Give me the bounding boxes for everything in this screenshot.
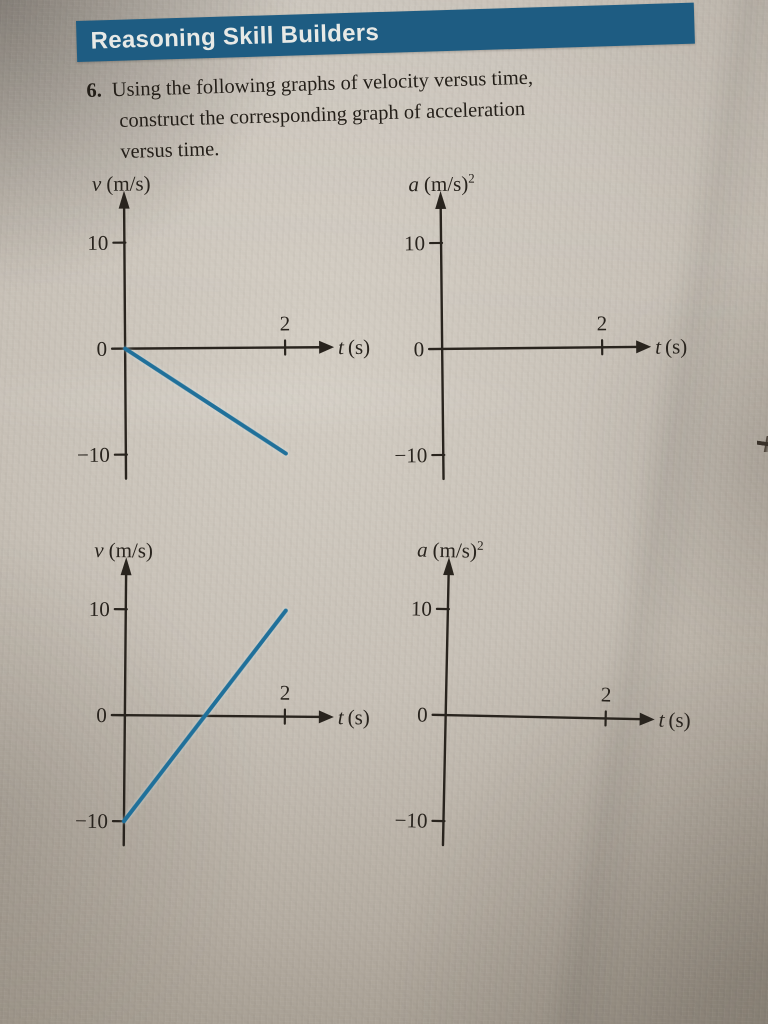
acceleration-time-graph-1: a(m/s)2 10 0 −10 2 t(s) — [390, 171, 673, 494]
y-tick-label-0: 0 — [414, 337, 425, 361]
x-axis-arrow-icon — [640, 713, 655, 726]
y-axis-variable: a — [408, 172, 419, 196]
acceleration-graph-1-canvas: a(m/s)2 10 0 −10 2 t(s) — [390, 171, 673, 494]
y-axis-variable: v — [92, 172, 102, 196]
y-axis — [443, 573, 449, 845]
x-tick-label-2: 2 — [601, 682, 612, 706]
x-axis — [112, 715, 322, 717]
y-axis-variable: v — [94, 538, 104, 562]
x-axis-units: (s) — [665, 334, 687, 358]
y-tick-label-0: 0 — [417, 703, 428, 727]
y-axis-units: (m/s) — [432, 538, 477, 563]
x-axis-title: t(s) — [655, 334, 687, 358]
y-axis-units-exponent: 2 — [468, 171, 475, 186]
x-axis-arrow-icon — [319, 710, 334, 723]
velocity-graph-2-canvas: v(m/s) 10 0 −10 2 t(s) — [74, 539, 357, 861]
x-axis-arrow-icon — [319, 341, 334, 354]
y-axis — [441, 207, 444, 479]
x-axis — [433, 715, 643, 719]
x-tick-label-2: 2 — [280, 681, 291, 705]
problem-statement: 6.Using the following graphs of velocity… — [86, 59, 669, 169]
x-tick-label-2: 2 — [597, 311, 608, 335]
y-tick-label-neg10: −10 — [77, 443, 110, 467]
y-axis-title: a(m/s)2 — [417, 536, 484, 562]
y-axis-title: a(m/s)2 — [408, 171, 475, 197]
y-axis-title: v(m/s) — [92, 171, 151, 195]
y-tick-label-neg10: −10 — [394, 808, 427, 833]
velocity-graph-1-canvas: v(m/s) 10 0 −10 2 t(s) — [74, 171, 356, 493]
y-tick-label-10: 10 — [87, 231, 108, 255]
x-axis-arrow-icon — [636, 340, 651, 353]
y-axis-units: (m/s) — [109, 538, 154, 562]
section-title: Reasoning Skill Builders — [76, 3, 695, 56]
y-axis-variable: a — [417, 537, 428, 561]
y-tick-label-0: 0 — [97, 337, 108, 361]
x-axis-units: (s) — [348, 705, 370, 729]
x-axis-title: t(s) — [658, 708, 691, 733]
problem-number: 6. — [86, 80, 102, 102]
acceleration-graph-2-canvas: a(m/s)2 10 0 −10 2 t(s) — [393, 538, 680, 864]
page-edge-artifact — [757, 436, 768, 452]
x-axis — [429, 347, 639, 349]
y-axis-units-exponent: 2 — [477, 538, 484, 553]
x-axis-variable: t — [338, 335, 345, 359]
velocity-line — [125, 348, 286, 455]
y-tick-label-10: 10 — [404, 231, 425, 255]
x-axis-units: (s) — [348, 335, 370, 359]
velocity-time-graph-1: v(m/s) 10 0 −10 2 t(s) — [74, 171, 356, 493]
y-tick-label-10: 10 — [89, 597, 110, 621]
x-axis — [112, 347, 322, 348]
x-axis-variable: t — [655, 335, 662, 359]
section-banner: Reasoning Skill Builders — [76, 3, 695, 62]
x-tick-label-2: 2 — [280, 311, 291, 335]
x-axis-title: t(s) — [338, 335, 370, 359]
y-tick-label-neg10: −10 — [394, 443, 427, 467]
y-axis-title: v(m/s) — [94, 538, 153, 563]
y-tick-label-neg10: −10 — [75, 809, 108, 833]
x-axis-variable: t — [658, 708, 666, 732]
x-axis-variable: t — [338, 705, 345, 729]
acceleration-time-graph-2: a(m/s)2 10 0 −10 2 t(s) — [393, 538, 680, 864]
velocity-time-graph-2: v(m/s) 10 0 −10 2 t(s) — [74, 539, 357, 861]
y-axis — [124, 573, 126, 845]
y-axis-units: (m/s) — [424, 172, 469, 196]
y-axis — [124, 207, 126, 479]
x-axis-units: (s) — [668, 708, 691, 732]
y-axis-units: (m/s) — [106, 171, 151, 195]
y-tick-label-0: 0 — [96, 703, 107, 727]
y-tick-label-10: 10 — [411, 596, 432, 620]
x-axis-title: t(s) — [338, 705, 370, 729]
